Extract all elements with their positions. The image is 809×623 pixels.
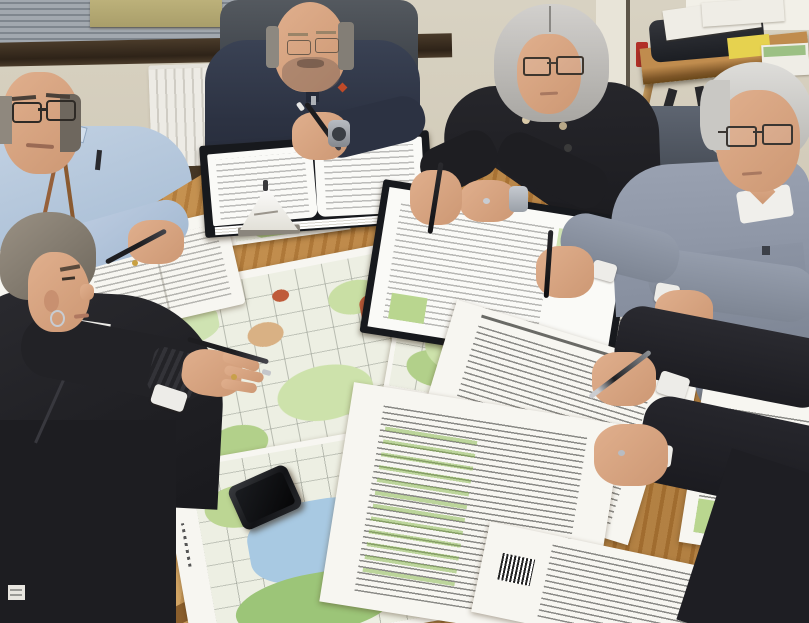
suit-pen-hand: [592, 352, 656, 406]
foreground-woman-nose: [80, 284, 94, 300]
table-sign-clip: [263, 180, 268, 191]
foreground-woman-back: [0, 420, 176, 623]
foreground-woman-ear: [44, 290, 59, 312]
navy-man-hair-left: [266, 26, 279, 68]
zip-pull: [311, 96, 316, 105]
bob-woman-ring: [483, 198, 490, 204]
bob-woman-watch: [509, 186, 528, 212]
blue-man-glasses-left: [12, 102, 42, 123]
foreground-woman-ring: [231, 374, 237, 380]
hoop-earring: [50, 310, 65, 327]
blue-man-ring: [132, 260, 138, 266]
suit-resting-hand: [594, 424, 668, 486]
sweater-chest-logo: [762, 246, 770, 255]
navy-man-hair-right: [338, 22, 354, 70]
blazer-tag: [8, 585, 25, 600]
photo-meeting-scene: [0, 0, 809, 623]
bob-woman-glasses-right: [556, 56, 584, 75]
page-map-thumb: [388, 293, 428, 324]
map-printout-strip: [763, 45, 805, 57]
rimless-glasses-right-lens: [315, 38, 339, 53]
grey-man-glasses-left: [726, 126, 757, 147]
tag-line: [10, 594, 22, 596]
navy-man-moustache: [297, 59, 324, 68]
grey-man-glasses-right: [762, 124, 793, 145]
map-margin-text: [181, 523, 192, 567]
doc-barcode: [497, 552, 535, 586]
watch-face: [332, 127, 346, 141]
notice-board: [90, 0, 222, 27]
navy-man-brow: [316, 31, 336, 34]
glasses-bridge: [38, 108, 46, 111]
navy-man-brow: [288, 33, 308, 36]
bob-woman-glasses-left: [523, 57, 551, 76]
tag-line: [10, 589, 22, 591]
blue-man-hair-left: [0, 96, 12, 144]
hair-parting: [549, 6, 551, 32]
necklace-bead: [559, 122, 567, 130]
glasses-bridge: [753, 131, 762, 133]
rimless-glasses-left-lens: [287, 40, 311, 55]
glasses-bridge: [547, 62, 556, 64]
suit-hand-ring: [618, 450, 625, 456]
blue-man-glasses-right: [46, 100, 76, 121]
navy-man-watch: [328, 120, 350, 147]
glasses-temple: [718, 131, 727, 133]
